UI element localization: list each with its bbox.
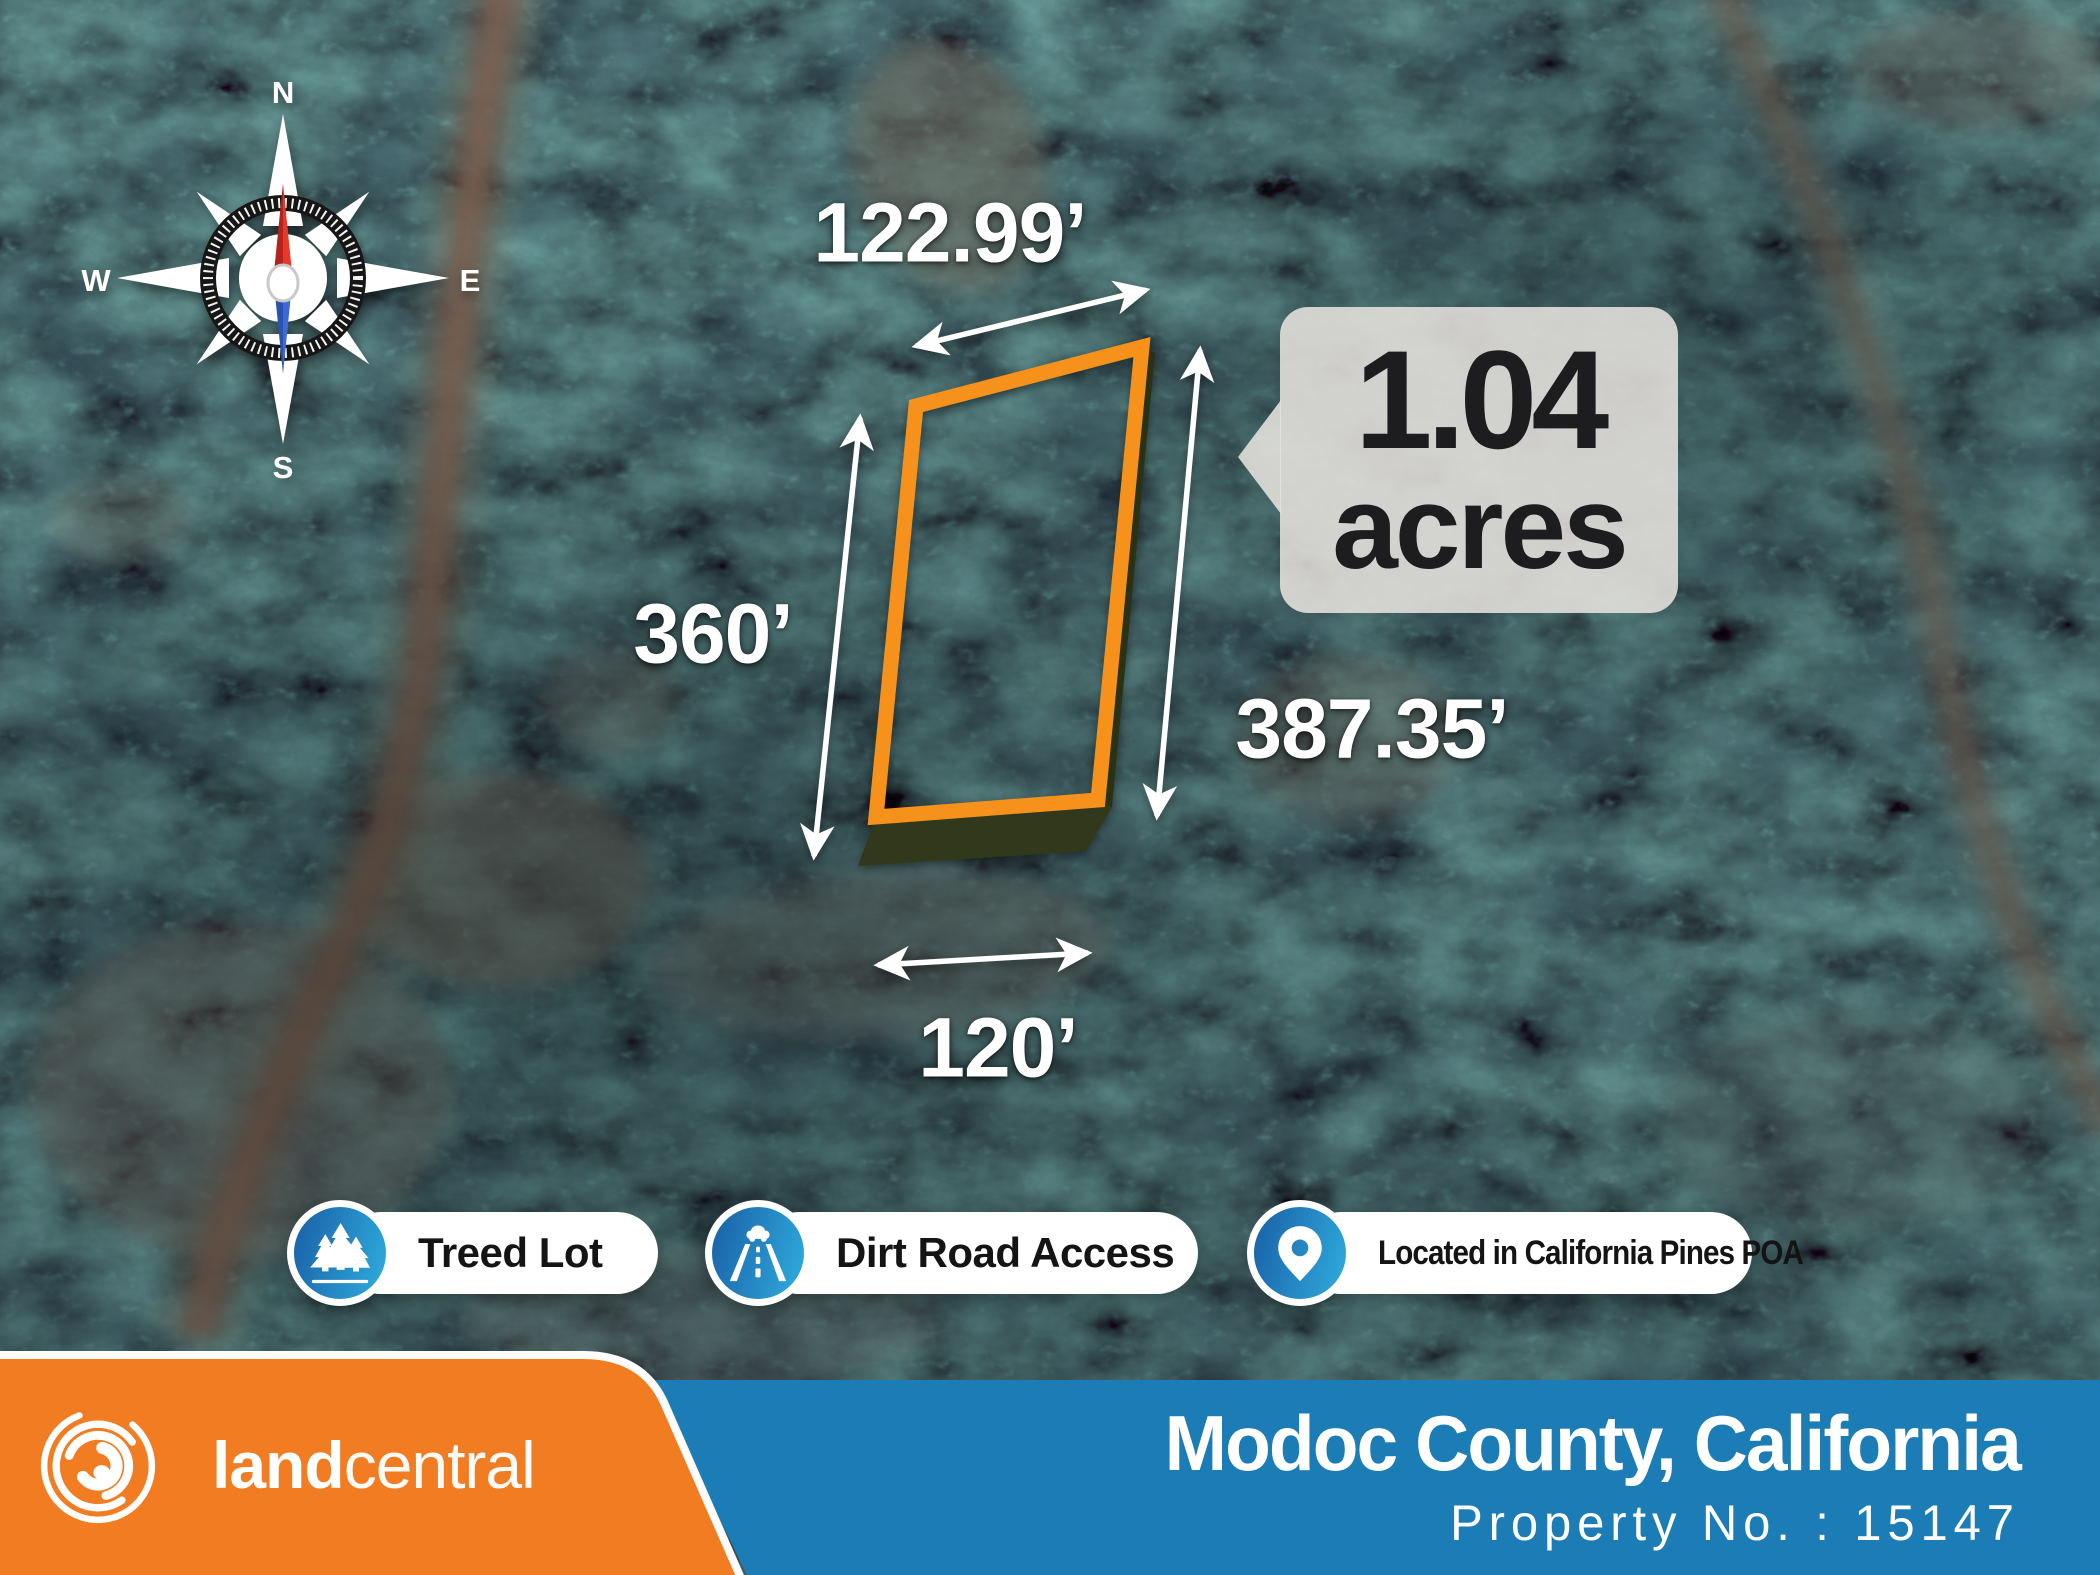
arrow-left-side bbox=[814, 418, 860, 856]
arrow-right-side bbox=[1157, 350, 1200, 816]
area-callout: 1.04 acres bbox=[1280, 307, 1678, 613]
dimension-label-right: 387.35’ bbox=[1235, 681, 1508, 778]
area-unit: acres bbox=[1332, 472, 1625, 584]
feature-label: Dirt Road Access bbox=[758, 1212, 1198, 1294]
landcentral-wordmark: landcentral bbox=[212, 1432, 535, 1498]
pine-trees-icon bbox=[287, 1200, 393, 1306]
road-icon bbox=[705, 1200, 811, 1306]
location-pin-icon bbox=[1247, 1200, 1353, 1306]
arrow-bottom-side bbox=[878, 953, 1088, 965]
property-listing-graphic: N E S W 122.99’ 360’ 387.35’ 120’ 1.04 a… bbox=[0, 0, 2100, 1575]
property-location: Modoc County, California bbox=[1165, 1404, 2020, 1482]
landcentral-logo-icon bbox=[33, 1401, 163, 1531]
compass-label-east: E bbox=[460, 263, 481, 298]
area-callout-tail bbox=[1238, 400, 1281, 514]
feature-badge-location: Located in California Pines POA bbox=[1247, 1200, 1752, 1306]
parcel-outline-group bbox=[858, 347, 1155, 866]
dimension-label-left: 360’ bbox=[633, 586, 793, 683]
compass-label-north: N bbox=[272, 75, 294, 110]
compass-label-south: S bbox=[273, 450, 294, 485]
area-value: 1.04 bbox=[1355, 336, 1603, 465]
brand-central: central bbox=[344, 1428, 535, 1502]
footer-property-info: Modoc County, California Property No. : … bbox=[1129, 1404, 2020, 1548]
dimension-label-top: 122.99’ bbox=[813, 185, 1086, 282]
parcel-boundary bbox=[876, 347, 1142, 817]
feature-badge-dirt-road: Dirt Road Access bbox=[705, 1200, 1198, 1306]
dimension-label-bottom: 120’ bbox=[918, 1000, 1078, 1097]
feature-badge-treed-lot: Treed Lot bbox=[287, 1200, 658, 1306]
arrow-top-side bbox=[916, 290, 1146, 346]
compass-label-west: W bbox=[81, 263, 111, 298]
property-number: Property No. : 15147 bbox=[1147, 1498, 2020, 1548]
brand-land: land bbox=[212, 1428, 344, 1502]
compass-knob bbox=[268, 265, 298, 301]
compass-rose: N E S W bbox=[81, 75, 480, 485]
feature-label: Located in California Pines POA bbox=[1300, 1212, 1752, 1294]
